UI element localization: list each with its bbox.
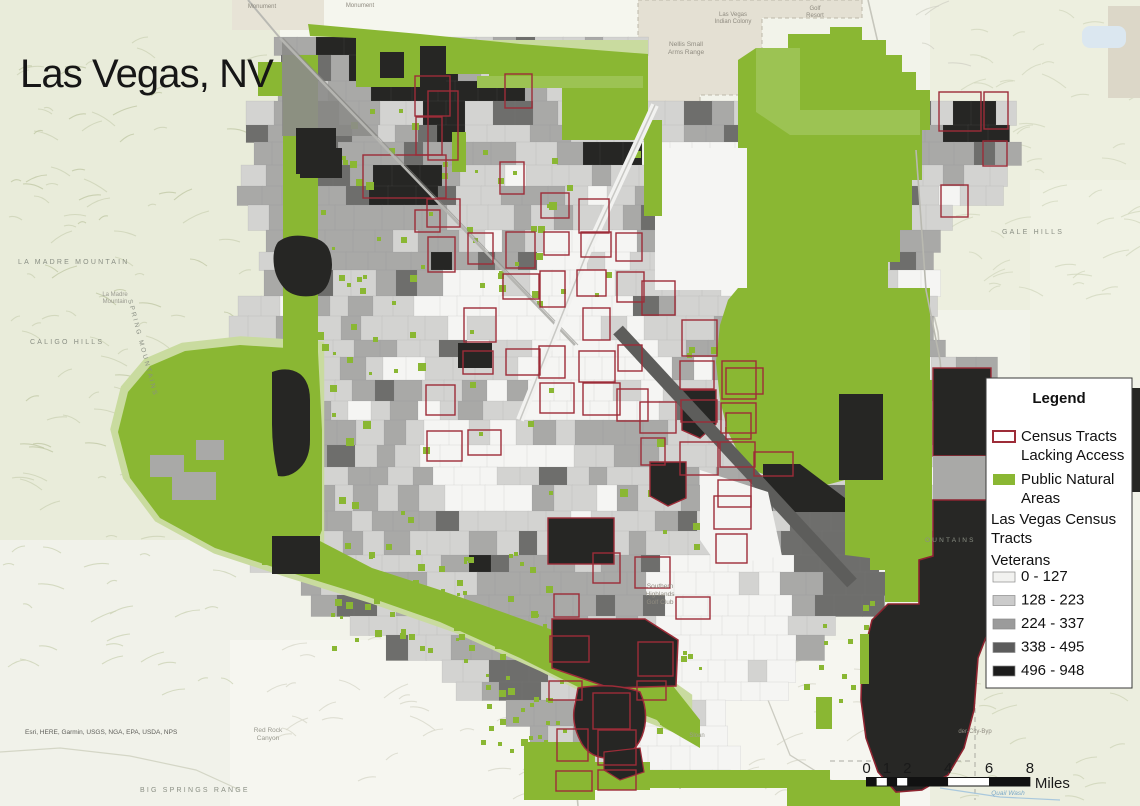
svg-text:Legend: Legend <box>1032 390 1085 407</box>
svg-text:Highlands: Highlands <box>646 591 676 598</box>
svg-text:Lacking Access: Lacking Access <box>1021 447 1124 464</box>
svg-text:Areas: Areas <box>1021 490 1060 507</box>
svg-text:0: 0 <box>862 760 870 777</box>
svg-text:CALIGO HILLS: CALIGO HILLS <box>30 339 104 346</box>
svg-text:496 - 948: 496 - 948 <box>1021 662 1084 679</box>
svg-text:Las Vegas, NV: Las Vegas, NV <box>20 52 274 96</box>
svg-text:LA MADRE MOUNTAIN: LA MADRE MOUNTAIN <box>18 259 130 266</box>
svg-text:Monument: Monument <box>346 3 375 9</box>
svg-text:Golf Club: Golf Club <box>646 599 673 606</box>
svg-text:1: 1 <box>883 760 891 777</box>
svg-text:OUNTAINS: OUNTAINS <box>925 537 976 544</box>
svg-text:Canyon: Canyon <box>257 735 280 742</box>
svg-text:Resort: Resort <box>806 13 824 19</box>
svg-text:Red Rock: Red Rock <box>254 727 283 734</box>
svg-text:Arms Range: Arms Range <box>668 49 705 56</box>
svg-text:Monument: Monument <box>248 4 277 10</box>
svg-text:Las Vegas: Las Vegas <box>719 12 747 18</box>
svg-text:Indian Colony: Indian Colony <box>715 19 752 25</box>
svg-text:Tracts: Tracts <box>991 530 1032 547</box>
svg-text:0 - 127: 0 - 127 <box>1021 568 1068 585</box>
svg-text:GALE HILLS: GALE HILLS <box>1002 229 1064 236</box>
svg-text:Mountain: Mountain <box>103 299 128 305</box>
svg-text:224 - 337: 224 - 337 <box>1021 615 1084 632</box>
svg-text:4: 4 <box>944 760 952 777</box>
svg-text:2: 2 <box>903 760 911 777</box>
svg-text:Sloan: Sloan <box>689 733 704 739</box>
svg-text:6: 6 <box>985 760 993 777</box>
svg-text:BIG SPRINGS RANGE: BIG SPRINGS RANGE <box>140 787 250 794</box>
svg-text:der-City-Byp: der-City-Byp <box>958 729 992 735</box>
svg-text:8: 8 <box>1026 760 1034 777</box>
svg-text:Public Natural: Public Natural <box>1021 471 1114 488</box>
svg-text:Veterans: Veterans <box>991 552 1050 569</box>
svg-text:Census Tracts: Census Tracts <box>1021 428 1117 445</box>
svg-text:Esri, HERE, Garmin, USGS, NGA,: Esri, HERE, Garmin, USGS, NGA, EPA, USDA… <box>25 729 178 736</box>
svg-text:338 - 495: 338 - 495 <box>1021 639 1084 656</box>
svg-text:Las Vegas Census: Las Vegas Census <box>991 511 1116 528</box>
svg-text:Quail Wash: Quail Wash <box>991 790 1025 797</box>
svg-text:La Madre: La Madre <box>102 292 128 298</box>
svg-text:Nellis Small: Nellis Small <box>669 41 704 48</box>
svg-text:128 - 223: 128 - 223 <box>1021 592 1084 609</box>
svg-text:Golf: Golf <box>809 6 820 12</box>
svg-text:Southern: Southern <box>647 583 674 590</box>
svg-text:Miles: Miles <box>1035 775 1070 792</box>
